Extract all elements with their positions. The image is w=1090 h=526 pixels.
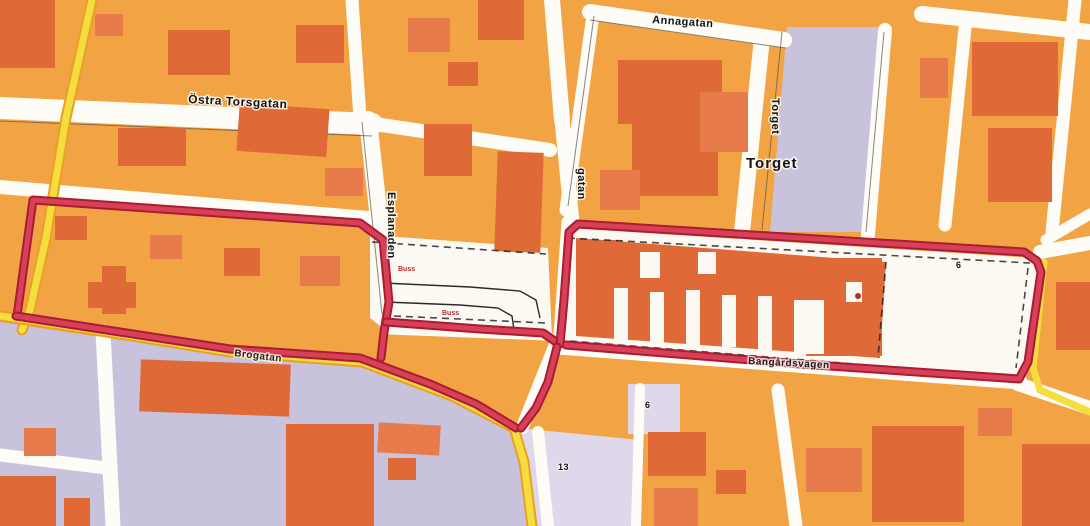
label-esplanaden: Esplanaden	[385, 192, 397, 259]
building	[448, 62, 478, 86]
building	[118, 128, 186, 166]
building	[478, 0, 524, 40]
label-lot-6-east: 6	[956, 260, 962, 270]
building	[150, 235, 182, 259]
building	[95, 14, 123, 36]
label-torget-square: Torget	[746, 155, 798, 172]
building	[300, 256, 340, 286]
map-svg: Östra Torsgatan Annagatan Torget Torget …	[0, 0, 1090, 526]
building	[654, 488, 698, 526]
building	[0, 0, 55, 68]
building	[102, 266, 126, 314]
label-torget-street: Torget	[769, 98, 781, 134]
street-north-stub	[352, 0, 360, 118]
building	[424, 124, 472, 176]
building	[716, 470, 746, 494]
building	[286, 424, 374, 526]
building	[388, 458, 416, 480]
map-dot	[855, 293, 861, 299]
building	[648, 432, 706, 476]
building	[920, 58, 948, 98]
building	[377, 422, 440, 455]
label-gatan: gatan	[575, 168, 587, 200]
building	[55, 216, 87, 240]
building	[988, 128, 1052, 202]
label-lot-6-west: 6	[645, 400, 651, 410]
building	[1022, 444, 1090, 526]
building	[978, 408, 1012, 436]
building	[224, 248, 260, 276]
building	[0, 476, 56, 526]
building	[168, 30, 230, 75]
building	[24, 428, 56, 456]
street-southwest-vertical	[103, 332, 113, 526]
label-lot-13: 13	[558, 462, 569, 472]
building	[408, 18, 450, 52]
building	[578, 240, 618, 336]
building	[64, 498, 90, 526]
building	[806, 448, 862, 492]
building	[494, 151, 543, 253]
building	[139, 359, 291, 416]
street-gatan-north	[552, 0, 562, 120]
building	[296, 25, 344, 63]
building	[600, 170, 640, 210]
building	[972, 42, 1058, 116]
building	[236, 103, 329, 157]
label-bus-stop-a: Buss	[398, 266, 415, 273]
street-south-mid-stub	[636, 388, 640, 526]
label-bus-stop-b: Buss	[442, 310, 459, 317]
map-canvas: Östra Torsgatan Annagatan Torget Torget …	[0, 0, 1090, 526]
building	[325, 168, 363, 196]
building	[700, 92, 748, 152]
building	[1056, 282, 1090, 350]
building	[872, 426, 964, 522]
